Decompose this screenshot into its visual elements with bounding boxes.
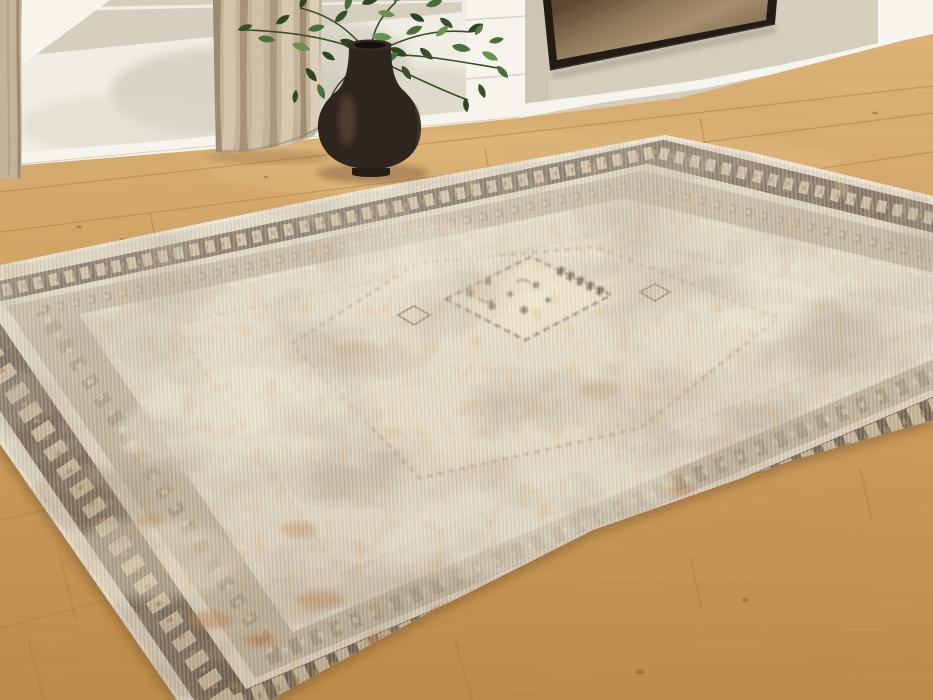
vase-highlight: [338, 94, 356, 146]
curtain-sliver-edge: [18, 0, 19, 178]
room-photo: [0, 0, 933, 700]
vase-mouth: [354, 42, 386, 49]
scene: [0, 0, 933, 700]
vase-foot: [352, 168, 390, 177]
